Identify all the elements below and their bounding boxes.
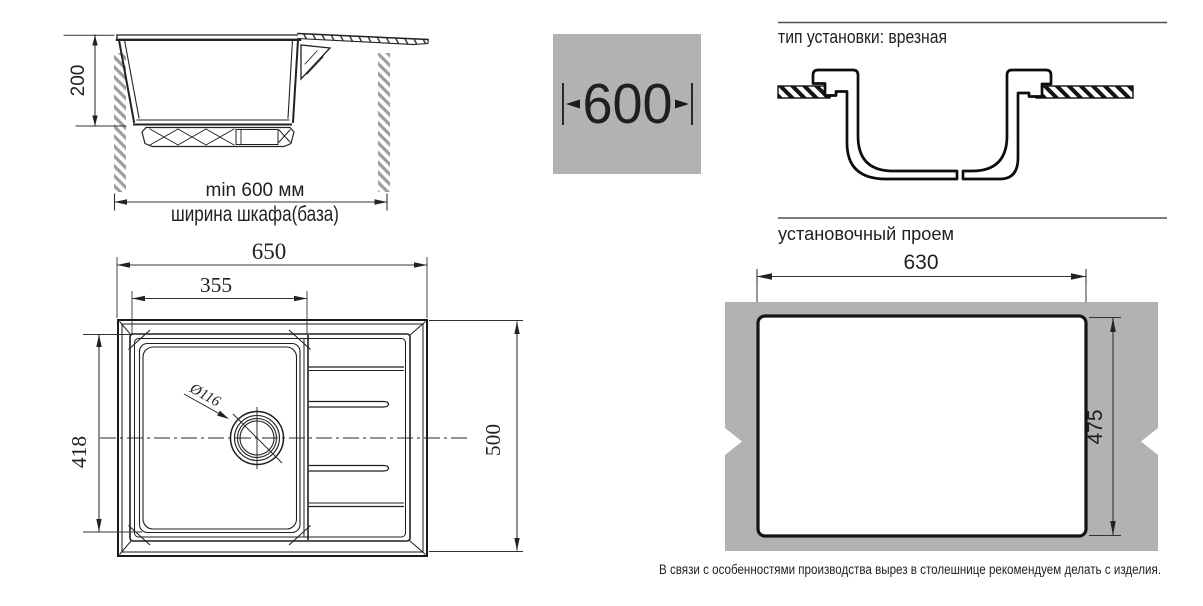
opening-depth-label: 475 bbox=[1084, 409, 1107, 444]
arrow-right-icon bbox=[375, 199, 388, 205]
arrow-down-icon bbox=[514, 538, 519, 551]
opening-heading: установочный проем bbox=[778, 224, 954, 244]
overall-depth-dimension: 500 bbox=[429, 321, 523, 552]
drainboard-section bbox=[298, 34, 428, 80]
diagram-canvas: 200 min 600 мм ширина шкафа(база) 600 ти… bbox=[0, 0, 1203, 606]
bowl-width-dimension: 355 bbox=[132, 273, 307, 334]
arrow-right-icon bbox=[294, 296, 307, 301]
cabinet-width-badge: 600 bbox=[553, 34, 701, 174]
sink-section-flange bbox=[142, 128, 294, 147]
cabinet-width-dimension: min 600 мм ширина шкафа(база) bbox=[115, 180, 388, 226]
arrow-left-icon bbox=[117, 262, 130, 268]
bowl-depth-label: 418 bbox=[67, 436, 91, 468]
min-width-label: min 600 мм bbox=[206, 180, 305, 201]
cabinet-section-view: 200 min 600 мм ширина шкафа(база) bbox=[64, 34, 428, 227]
sink-section-outline bbox=[117, 35, 300, 125]
arrow-up-icon bbox=[96, 335, 101, 348]
mounting-profile-left bbox=[813, 70, 957, 179]
badge-width-value: 600 bbox=[583, 72, 673, 136]
overall-width-label: 650 bbox=[252, 239, 287, 264]
arrow-left-icon bbox=[115, 199, 128, 205]
overall-width-dimension: 650 bbox=[117, 239, 427, 318]
cabinet-width-label: ширина шкафа(база) bbox=[171, 203, 339, 226]
arrow-up-icon bbox=[92, 35, 97, 46]
arrow-down-icon bbox=[96, 519, 101, 532]
mounting-profile-right bbox=[963, 70, 1051, 179]
countertop-right-hatch bbox=[1036, 86, 1133, 98]
sink-installation-diagram: 200 min 600 мм ширина шкафа(база) 600 ти… bbox=[0, 0, 1203, 606]
sink-top-view: Ø116 650 355 418 bbox=[67, 239, 523, 556]
countertop-left-hatch bbox=[778, 86, 830, 98]
arrow-right-icon bbox=[414, 262, 427, 268]
arrow-leader-icon bbox=[217, 411, 229, 419]
installation-type-section: тип установки: врезная установочный прое… bbox=[778, 23, 1167, 245]
drainboard-ribs bbox=[309, 367, 404, 507]
depth-dimension-label: 200 bbox=[68, 65, 89, 97]
cabinet-right-wall-hatch bbox=[378, 53, 390, 192]
production-note: В связи с особенностями производства выр… bbox=[659, 562, 1161, 577]
arrow-down-icon bbox=[92, 116, 97, 127]
bowl-width-label: 355 bbox=[200, 273, 232, 297]
arrow-left-icon bbox=[132, 296, 145, 301]
drainboard-support-bracket bbox=[301, 45, 330, 79]
arrow-right-icon bbox=[1071, 273, 1086, 280]
arrow-left-icon bbox=[757, 273, 772, 280]
installation-type-heading: тип установки: врезная bbox=[778, 27, 947, 47]
overall-depth-label: 500 bbox=[481, 424, 505, 456]
cutout-opening bbox=[758, 316, 1086, 536]
opening-width-label: 630 bbox=[903, 251, 938, 274]
arrow-up-icon bbox=[514, 322, 519, 335]
installation-opening-view: 630 475 В связи с особенностями производ… bbox=[659, 251, 1161, 577]
drain-diameter-dimension: Ø116 bbox=[184, 380, 229, 419]
